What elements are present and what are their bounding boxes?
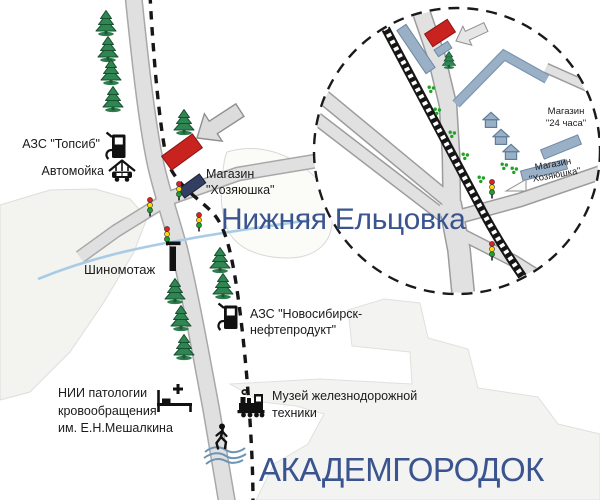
fuel-pump-icon-2 bbox=[218, 304, 237, 331]
map-canvas: АЗС "Топсиб" Автомойка Магазин "Хозяюшка… bbox=[0, 0, 600, 500]
railway-track bbox=[150, 0, 253, 500]
hospital-bed-cross-icon bbox=[157, 384, 192, 412]
fuel-pump-icon bbox=[106, 133, 125, 160]
car-wash-icon bbox=[109, 161, 135, 182]
map-graphics bbox=[0, 0, 600, 500]
red-building bbox=[162, 134, 203, 170]
